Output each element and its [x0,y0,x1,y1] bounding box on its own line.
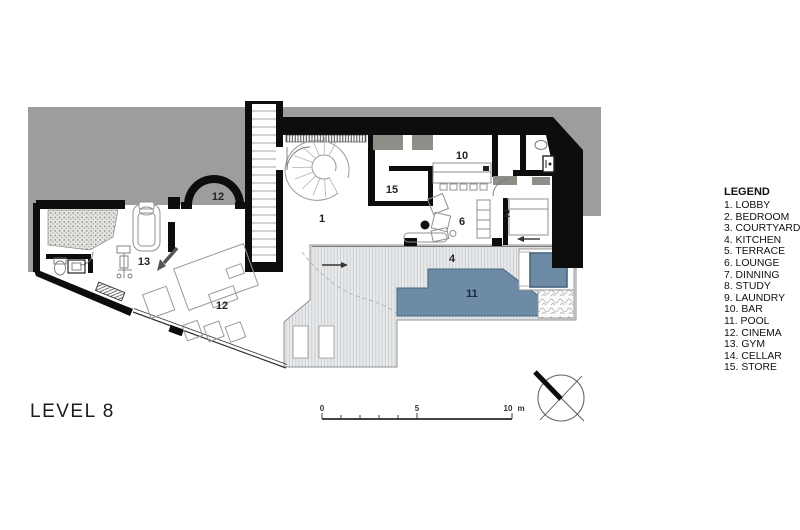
room-label-cinema: 12 [216,300,228,312]
plan-title: LEVEL 8 [30,401,115,423]
terrace-area [284,238,576,367]
skylight [319,326,334,358]
stair-shaft [245,101,283,272]
north-arrow-icon [535,372,584,421]
room-label-kitchen: 4 [449,253,456,265]
legend-item: 10. BAR [724,304,800,316]
floor-plan-page: 1 2 4 6 10 11 12 12 13 15 0 5 10 m LEVEL… [0,0,800,530]
legend-item: 3. COURTYARD [724,223,800,235]
scale-ten: 10 [504,404,513,413]
bookshelf [477,200,490,238]
legend-heading: LEGEND [724,186,800,198]
legend-item: 6. LOUNGE [724,258,800,270]
scale-bar: 0 5 10 m [320,404,525,419]
legend-item: 4. KITCHEN [724,235,800,247]
scale-zero: 0 [320,404,325,413]
legend-item: 12. CINEMA [724,328,800,340]
room-label-bedroom: 2 [504,208,510,220]
legend: LEGEND 1. LOBBY 2. BEDROOM 3. COURTYARD … [724,186,800,374]
legend-item: 15. STORE [724,362,800,374]
legend-item: 9. LAUNDRY [724,293,800,305]
side-table [421,221,430,230]
room-label-store: 15 [386,184,398,196]
skylight [293,326,308,358]
scale-five: 5 [415,404,420,413]
planter [538,290,574,318]
legend-item: 11. POOL [724,316,800,328]
legend-item: 5. TERRACE [724,246,800,258]
room-label-lounge: 6 [459,216,465,228]
legend-item: 7. DINNING [724,270,800,282]
room-label-cinema-upper: 12 [212,191,224,203]
room-label-pool: 11 [466,288,478,300]
bed [509,199,548,235]
legend-item: 14. CELLAR [724,351,800,363]
wall-stub [492,238,502,246]
scale-unit: m [517,404,524,413]
room-label-lobby: 1 [319,213,325,225]
room-label-bar: 10 [456,150,468,162]
legend-item: 2. BEDROOM [724,212,800,224]
room-label-gym: 13 [138,256,150,268]
legend-item: 13. GYM [724,339,800,351]
floor-plan-svg: 1 2 4 6 10 11 12 12 13 15 0 5 10 m [0,0,800,530]
treadmill [133,202,160,251]
legend-item: 8. STUDY [724,281,800,293]
legend-item: 1. LOBBY [724,200,800,212]
